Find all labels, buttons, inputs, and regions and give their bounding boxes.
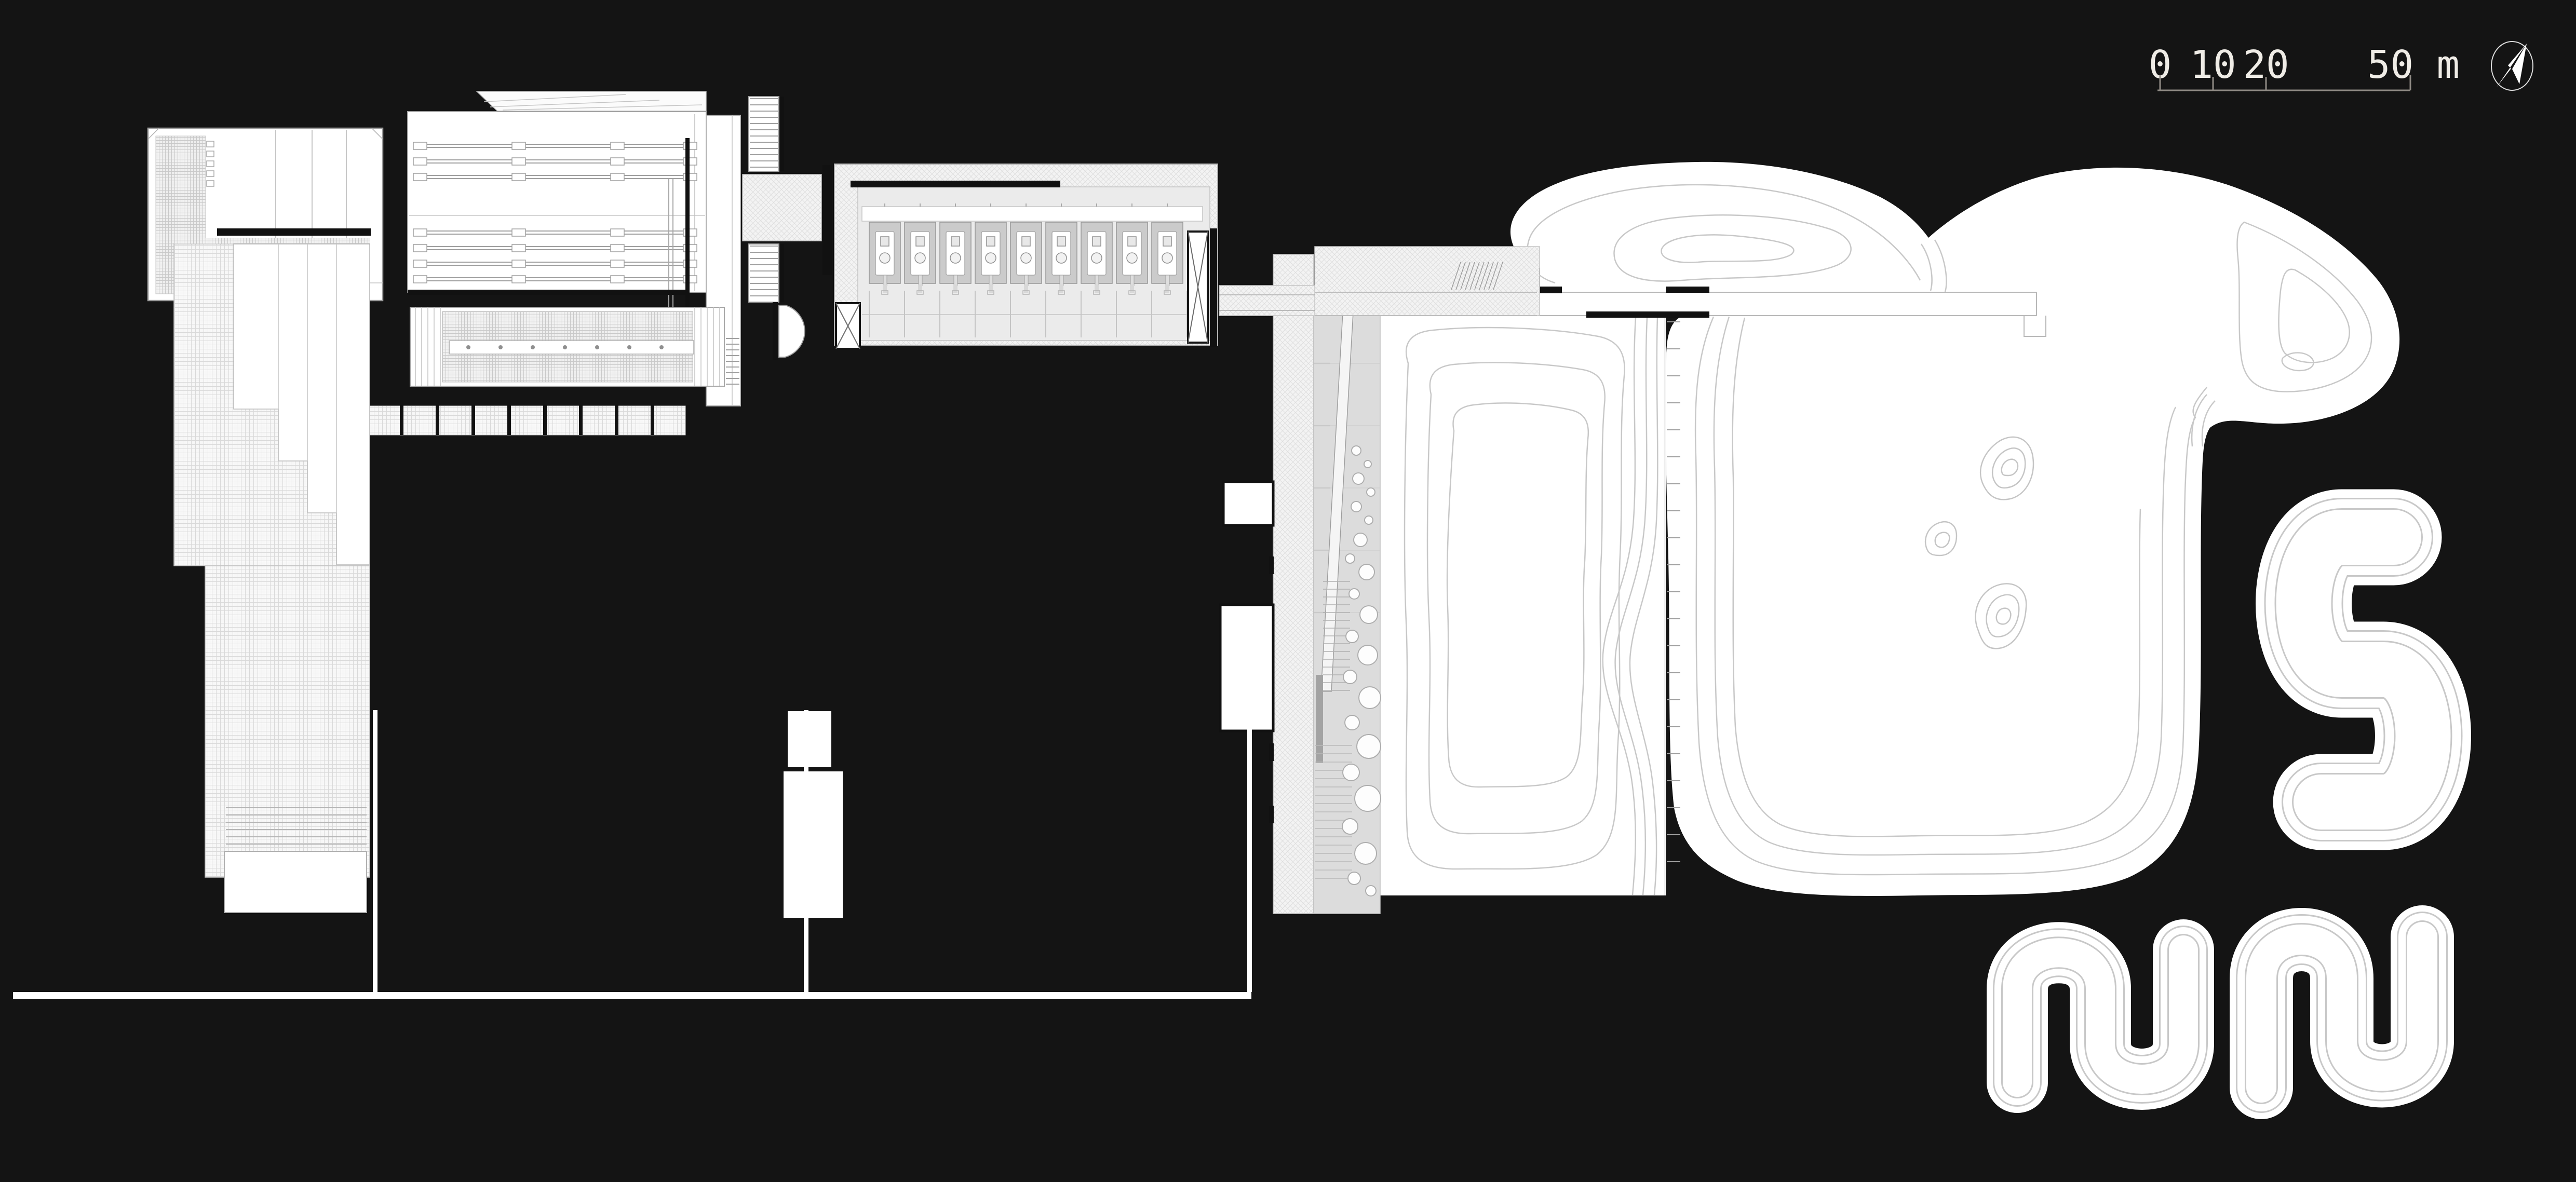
path-horizontal [13,992,1251,999]
apse-stair [779,305,805,357]
stair-connectors [743,97,832,360]
service-paths [13,710,1252,999]
colonnade-walk [366,405,690,435]
serpentine-east [2304,537,2423,802]
trellis-table [450,341,694,354]
north-arrow-icon [2491,42,2533,90]
connector-wall [822,165,832,275]
site-plan-svg: 0 10 20 50 m [0,0,2576,1182]
auditorium-hall [408,112,706,328]
scale-label-50m: 50 m [2367,43,2460,87]
strip-room-2 [1220,605,1273,731]
strip-walk-hatch [1273,254,1314,914]
sanitary-block [834,164,1218,349]
terrace-top-wall [217,228,371,236]
trellis-courtyard [410,307,724,386]
canopy [477,91,706,111]
ramp-wall [1316,675,1323,763]
path-vertical-1 [373,710,377,992]
hall-base-bar [408,290,686,295]
serpentine-south-2 [2261,937,2422,1088]
hall-wall-bar [685,138,690,328]
terrace-landing [224,851,367,913]
terraced-ramp-building [174,228,371,913]
path-pavilion-1 [788,711,831,767]
planted-ramp-strip [1220,254,1381,914]
path-vertical-3 [1247,710,1252,992]
shaft-east [1188,232,1208,343]
access-plaza [1219,247,1540,316]
block-wall-bar [851,181,1060,187]
block-corridor [862,207,1203,221]
strip-room-1 [1223,482,1273,525]
scale-bar: 0 10 20 50 m [2149,43,2460,90]
shaft-west [836,303,860,349]
building-complex [148,91,1218,913]
path-pavilion-2 [784,771,843,918]
serpentine-south-1 [2017,950,2183,1082]
access-road [1219,286,1315,316]
